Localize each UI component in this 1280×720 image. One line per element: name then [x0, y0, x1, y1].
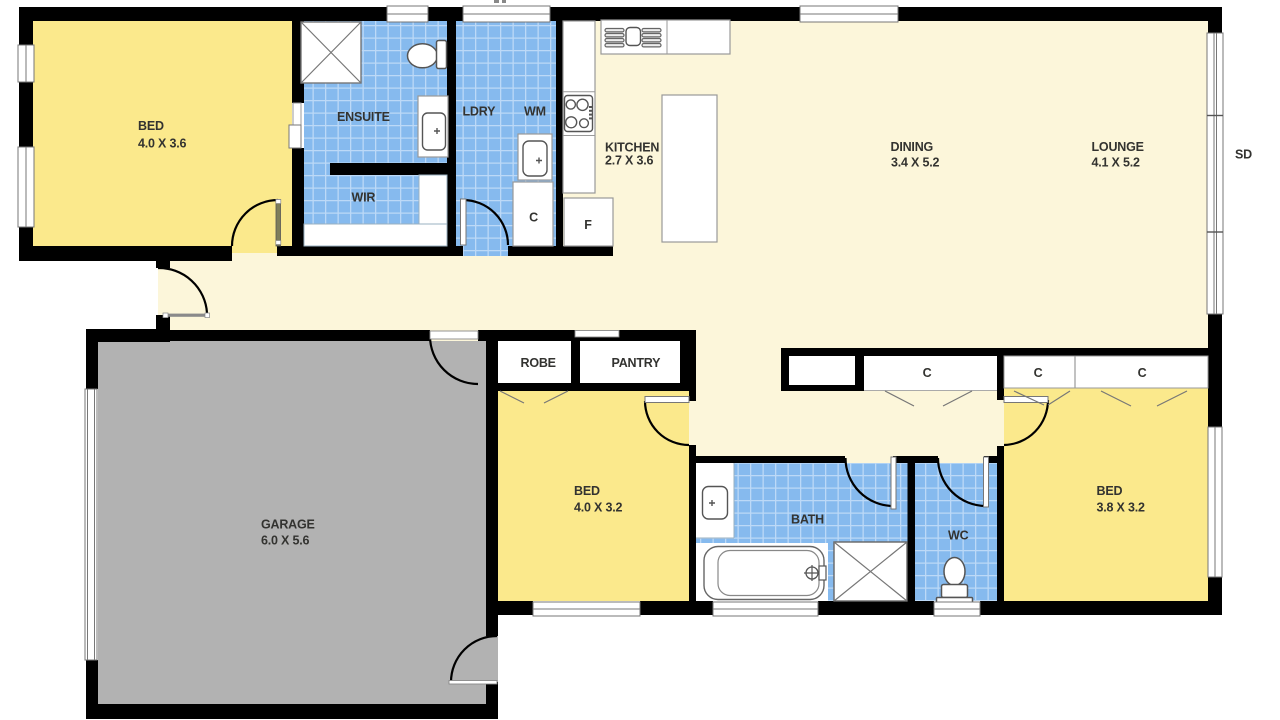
svg-text:ROBE: ROBE [521, 356, 556, 370]
svg-text:WM: WM [524, 105, 546, 119]
svg-text:WIR: WIR [352, 191, 376, 205]
svg-text:C: C [923, 366, 932, 380]
svg-text:4.1 X 5.2: 4.1 X 5.2 [1092, 156, 1140, 170]
svg-text:SD: SD [1235, 148, 1252, 162]
svg-text:DINING: DINING [891, 140, 934, 154]
svg-text:KITCHEN: KITCHEN [605, 141, 659, 155]
svg-text:PANTRY: PANTRY [612, 356, 662, 370]
svg-text:LOUNGE: LOUNGE [1092, 140, 1144, 154]
svg-text:BED: BED [1097, 484, 1123, 498]
svg-text:F: F [584, 218, 592, 232]
svg-text:ENSUITE: ENSUITE [337, 110, 390, 124]
svg-text:6.0 X 5.6: 6.0 X 5.6 [261, 534, 309, 548]
svg-text:C: C [1034, 366, 1043, 380]
svg-text:BED: BED [138, 119, 164, 133]
svg-text:C: C [529, 211, 538, 225]
svg-text:GARAGE: GARAGE [261, 518, 315, 532]
svg-text:WC: WC [948, 529, 969, 543]
svg-text:2.7 X 3.6: 2.7 X 3.6 [605, 154, 653, 168]
svg-text:BED: BED [574, 484, 600, 498]
svg-text:3.8 X 3.2: 3.8 X 3.2 [1097, 501, 1145, 515]
svg-text:C: C [1138, 366, 1147, 380]
svg-text:3.4 X 5.2: 3.4 X 5.2 [891, 156, 939, 170]
svg-text:4.0 X 3.6: 4.0 X 3.6 [138, 137, 186, 151]
svg-text:4.0 X 3.2: 4.0 X 3.2 [574, 501, 622, 515]
svg-text:BATH: BATH [791, 513, 824, 527]
svg-text:LDRY: LDRY [463, 105, 497, 119]
